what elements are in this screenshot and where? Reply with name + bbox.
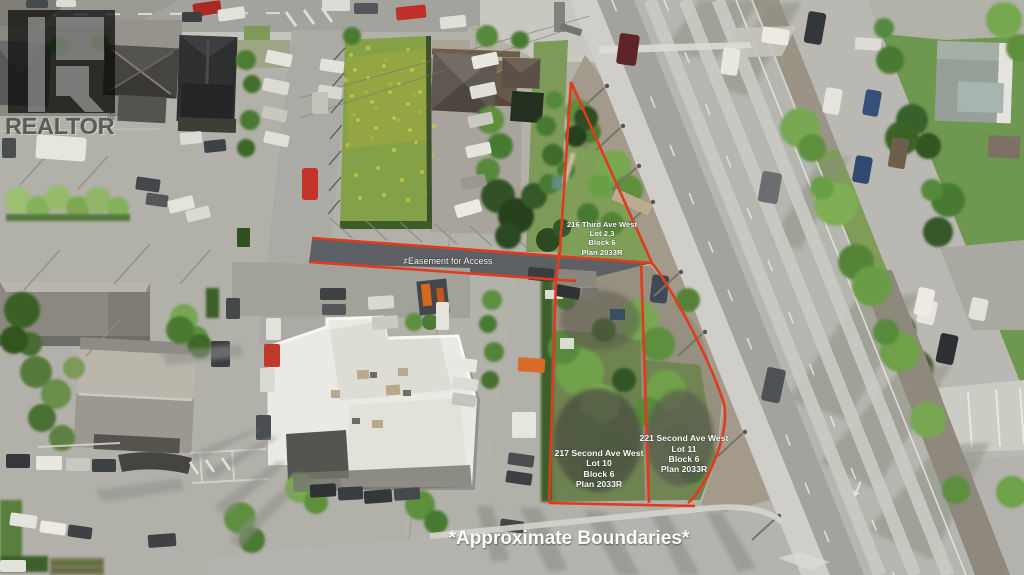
svg-text:Lot 10: Lot 10 [586,458,612,468]
svg-text:Plan 2033R: Plan 2033R [661,464,708,474]
svg-text:REALTOR: REALTOR [5,113,115,139]
svg-text:Block 6: Block 6 [669,454,700,464]
svg-text:221 Second Ave West: 221 Second Ave West [639,433,728,443]
svg-text:Block 6: Block 6 [584,469,615,479]
svg-text:Plan 2033R: Plan 2033R [581,248,622,257]
svg-text:*Approximate Boundaries*: *Approximate Boundaries* [449,528,690,549]
svg-text:217 Second Ave West: 217 Second Ave West [554,448,643,458]
svg-text:Lot 11: Lot 11 [671,444,696,454]
svg-text:®: ® [108,112,116,123]
svg-text:Block 6: Block 6 [588,238,615,247]
svg-text:≠Easement for Access: ≠Easement for Access [403,256,493,266]
svg-text:Lot 2,3: Lot 2,3 [590,229,615,238]
svg-text:216 Third Ave West: 216 Third Ave West [567,220,638,229]
svg-text:Plan 2033R: Plan 2033R [576,479,623,489]
